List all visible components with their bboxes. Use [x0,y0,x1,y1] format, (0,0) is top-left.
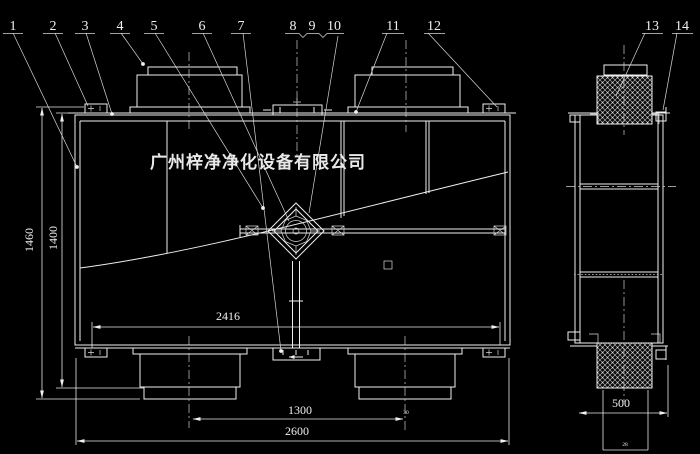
dim-text-body-height: 1400 [46,226,60,250]
dim-text-inner-width: 2416 [216,309,240,323]
cad-drawing-canvas: 1460 1400 2416 1300 30 2600 500 28 1 2 3… [0,0,700,454]
callout-8: 8 [290,19,297,34]
background [0,0,700,454]
callout-1: 1 [10,19,17,34]
callout-14: 14 [675,19,689,34]
callout-9: 9 [309,19,316,34]
callout-7: 7 [238,19,245,34]
callout-10: 10 [327,19,341,34]
company-watermark: 广州梓净净化设备有限公司 [150,152,366,172]
callout-5: 5 [151,19,158,34]
bottom-filter-block [597,343,652,388]
callout-11: 11 [386,19,399,34]
dim-text-side-duct-width: 500 [612,396,630,410]
dim-text-overall-height: 1460 [22,228,36,252]
callout-4: 4 [117,19,124,34]
callout-6: 6 [199,19,206,34]
callout-13: 13 [645,19,659,34]
dim-text-overall-width: 2600 [285,424,309,438]
top-filter-block [597,76,652,124]
dim-text-small-right: 30 [403,410,409,416]
callout-12: 12 [427,19,441,34]
callout-2: 2 [50,19,57,34]
dim-text-duct-spacing: 1300 [288,403,312,417]
dim-text-small-side: 28 [622,442,628,448]
callout-3: 3 [82,19,89,34]
